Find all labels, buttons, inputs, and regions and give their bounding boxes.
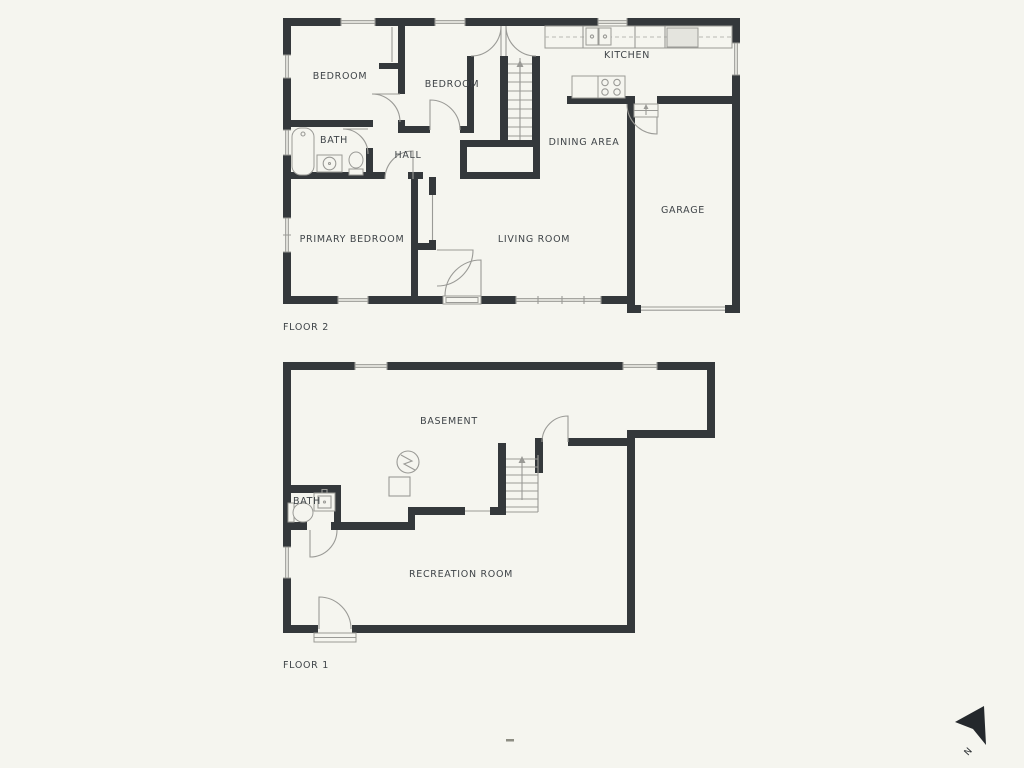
- floor1-stairs: [506, 455, 538, 512]
- room-label-recreation: RECREATION ROOM: [409, 569, 513, 580]
- room-label-hall: HALL: [394, 150, 421, 161]
- window: [341, 18, 375, 26]
- floor1-title: FLOOR 1: [283, 660, 329, 671]
- plan-line: [445, 260, 481, 296]
- door-bedroom-left: [372, 94, 400, 122]
- floor2-labels: BEDROOM BEDROOM KITCHEN BATH HALL DINING…: [283, 50, 705, 333]
- plan-line: [598, 76, 625, 98]
- garage-door: [641, 305, 725, 313]
- floor2-kitchen-fixtures: [545, 26, 732, 98]
- wall-segment: [398, 26, 405, 94]
- door-landing-bedroom: [471, 26, 501, 56]
- wall-segment: [460, 140, 540, 147]
- room-label-basement: BASEMENT: [420, 416, 478, 427]
- plan-line: [516, 296, 601, 304]
- floor2-title: FLOOR 2: [283, 322, 329, 333]
- wall-segment: [408, 507, 465, 515]
- wall-segment: [707, 362, 715, 438]
- window: [283, 55, 291, 78]
- door-front: [443, 260, 481, 304]
- window: [623, 362, 657, 370]
- wall-segment: [657, 96, 732, 104]
- window: [283, 547, 291, 578]
- wall-segment: [460, 172, 540, 179]
- plan-line: [446, 298, 478, 303]
- plan-line: [641, 305, 725, 313]
- plan-line: [623, 362, 657, 370]
- window: [283, 218, 291, 252]
- wall-segment: [331, 522, 341, 530]
- room-label-bath2: BATH: [320, 135, 348, 146]
- door-bath1: [310, 530, 337, 557]
- window: [338, 296, 368, 304]
- door-bedroom-mid: [430, 100, 460, 130]
- kitchen-appliance: [667, 28, 698, 47]
- plan-line: [732, 43, 740, 75]
- plan-line: [338, 296, 368, 304]
- wall-segment: [568, 438, 627, 446]
- door-basement: [542, 416, 568, 442]
- wall-segment: [283, 625, 318, 633]
- floor1-plan: BASEMENT BATH RECREATION ROOM FLOOR 1: [283, 362, 715, 671]
- wall-segment: [429, 177, 436, 195]
- plan-line: [506, 26, 536, 56]
- wall-segment: [411, 179, 418, 296]
- window: [435, 18, 465, 26]
- plan-line: [471, 26, 501, 56]
- plan-line: [586, 28, 598, 45]
- wall-segment: [411, 243, 436, 250]
- door-entry-closet: [437, 250, 473, 286]
- wall-segment: [498, 443, 506, 515]
- plan-line: [372, 94, 400, 122]
- wall-segment: [283, 362, 291, 633]
- compass-north-label: N: [963, 746, 975, 758]
- wall-segment: [627, 305, 641, 313]
- plan-line: [401, 455, 415, 470]
- room-label-garage: GARAGE: [661, 205, 705, 216]
- plan-line: [349, 152, 363, 168]
- wall-segment: [627, 430, 715, 438]
- wall-segment: [467, 56, 474, 133]
- wall-segment: [535, 438, 543, 473]
- floor1-windows: [283, 362, 657, 578]
- stove: [598, 76, 625, 98]
- utility-box: [389, 477, 410, 496]
- door-landing-kitchen: [506, 26, 536, 56]
- wall-segment: [500, 56, 508, 147]
- room-label-dining: DINING AREA: [549, 137, 620, 148]
- electrical-panel-symbol: [397, 451, 419, 473]
- plan-line: [310, 530, 337, 557]
- room-label-bedroom-left: BEDROOM: [313, 71, 368, 82]
- north-arrow-icon: [955, 706, 986, 745]
- wall-segment: [283, 485, 341, 493]
- bathtub: [292, 128, 314, 175]
- window: [732, 43, 740, 75]
- plan-line: [283, 547, 291, 578]
- plan-line: [542, 416, 568, 442]
- wall-segment: [283, 522, 307, 530]
- window: [598, 18, 627, 26]
- plan-line: [283, 130, 291, 155]
- wall-segment: [627, 96, 635, 313]
- kitchen-sink: [586, 28, 611, 45]
- wall-segment: [627, 430, 635, 633]
- plan-line: [437, 250, 473, 286]
- floor2-stairs: [508, 58, 532, 140]
- room-label-bath1: BATH: [293, 496, 321, 507]
- plan-line: [283, 55, 291, 78]
- plan-line: [349, 169, 363, 175]
- wall-segment: [408, 172, 423, 179]
- wall-segment: [532, 56, 540, 147]
- wall-segment: [341, 522, 415, 530]
- wall-segment: [398, 126, 430, 133]
- plan-line: [598, 18, 627, 26]
- bath-sink: [317, 155, 342, 172]
- wall-segment: [533, 140, 540, 179]
- wall-segment: [725, 305, 740, 313]
- compass: N: [955, 706, 986, 758]
- wall-segment: [352, 625, 635, 633]
- plan-line: [430, 100, 460, 130]
- plan-line: [319, 597, 351, 629]
- plan-line: [599, 28, 611, 45]
- room-label-kitchen: KITCHEN: [604, 50, 650, 61]
- room-label-primary-bedroom: PRIMARY BEDROOM: [300, 234, 405, 245]
- room-label-living: LIVING ROOM: [498, 234, 570, 245]
- floor1-walls: [283, 362, 715, 633]
- toilet: [349, 152, 363, 175]
- floor2-plan: BEDROOM BEDROOM KITCHEN BATH HALL DINING…: [283, 18, 740, 333]
- wall-segment: [283, 120, 373, 127]
- floorplan-canvas: BEDROOM BEDROOM KITCHEN BATH HALL DINING…: [0, 0, 1024, 768]
- plan-line: [355, 362, 387, 370]
- window: [355, 362, 387, 370]
- door-recreation-exterior: [314, 597, 356, 642]
- window: [516, 296, 601, 304]
- watermark-dash: [506, 739, 514, 742]
- wall-segment: [379, 63, 398, 69]
- room-label-bedroom-mid: BEDROOM: [425, 79, 480, 90]
- floorplan-svg: BEDROOM BEDROOM KITCHEN BATH HALL DINING…: [0, 0, 1024, 768]
- plan-line: [341, 18, 375, 26]
- plan-line: [435, 18, 465, 26]
- window: [283, 130, 291, 155]
